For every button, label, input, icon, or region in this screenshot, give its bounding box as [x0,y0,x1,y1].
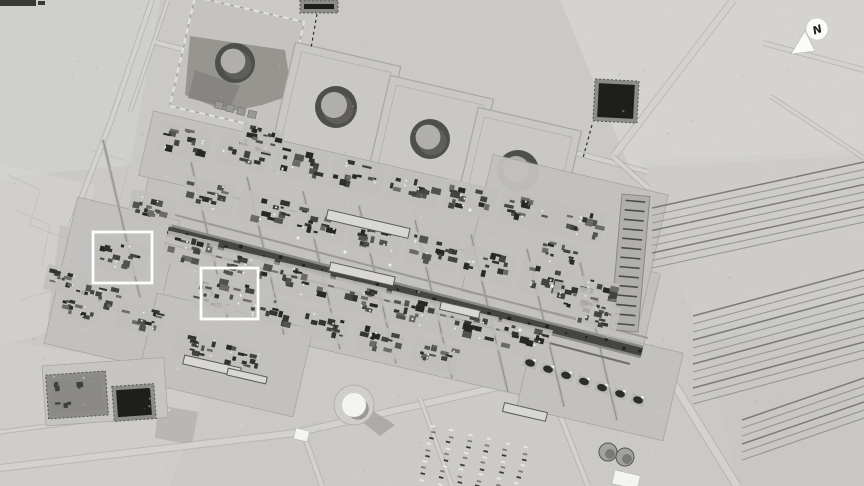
bright-structure [469,209,472,212]
bright-structure [389,264,392,267]
bright-structure [551,285,554,288]
small-tank [616,448,634,466]
pipe-structure [605,338,608,341]
white-building [612,470,640,486]
pipe-structure [376,282,380,286]
pipe-structure [321,269,323,271]
pipe-structure [397,288,400,291]
pond [300,0,338,13]
edge-structure [0,0,36,6]
scene-graphics [0,0,864,486]
pipe-structure [239,244,243,248]
bright-structure [344,251,347,254]
pipe-structure [279,255,283,259]
shed [236,107,245,116]
bright-structure [519,329,522,332]
pipe-structure [565,332,567,334]
survey-line [311,14,317,48]
small-tank [599,443,617,461]
pipe-structure [622,346,626,350]
pipe-structure [545,324,549,328]
pond [112,384,156,422]
storage-tank [315,86,357,128]
pond [593,79,639,123]
storage-tank [215,43,255,83]
pond [46,371,109,419]
storage-tank [410,119,450,159]
shed [225,104,234,113]
pipe-structure [638,349,641,352]
dome-tank [334,385,374,425]
shed [214,101,223,110]
shed [247,110,256,119]
pipe-structure [585,336,587,338]
bright-structure [297,237,300,240]
satellite-scene: N [0,0,864,486]
edge-structure [38,1,45,5]
satellite-image: N [0,0,864,486]
